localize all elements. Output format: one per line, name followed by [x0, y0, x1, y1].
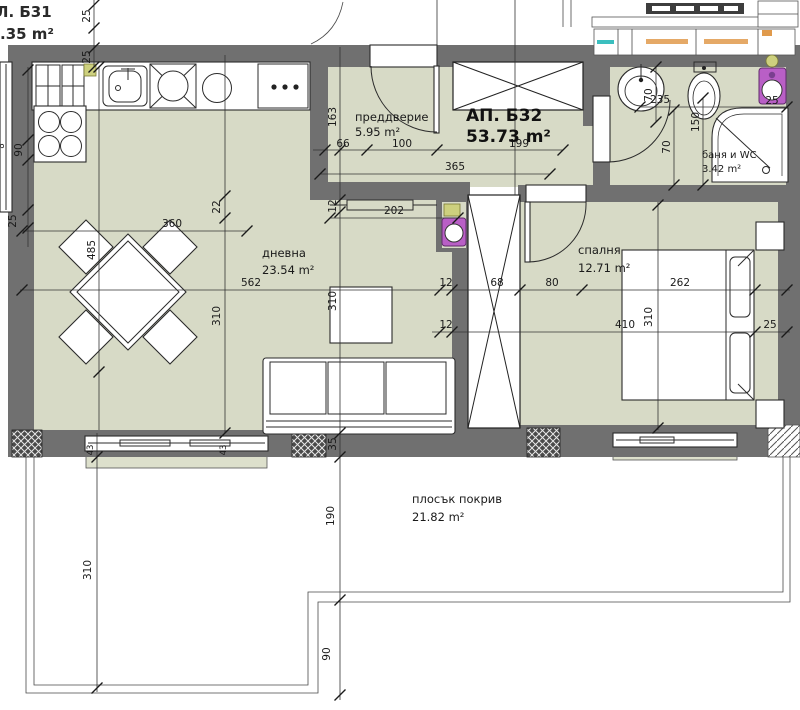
dim-12: 12	[439, 277, 452, 289]
bedroom-window	[613, 433, 737, 447]
dim-485: 485	[86, 240, 98, 260]
nightstand	[756, 400, 784, 428]
corridor-door-arc	[311, 2, 343, 44]
neighbor-window	[0, 62, 12, 212]
roof-area: 21.82 m²	[412, 510, 464, 524]
dim-150: 150	[690, 112, 702, 132]
bath-label: баня и WC	[702, 150, 757, 161]
dim-90: 90	[13, 143, 25, 156]
dim-25: 25	[81, 50, 93, 63]
dim-25: 25	[81, 9, 93, 22]
dim-90: 90	[321, 647, 333, 660]
bath-area: 3.42 m²	[702, 164, 741, 175]
dim-365: 365	[445, 161, 465, 173]
dim-310: 310	[643, 307, 655, 327]
dim-310: 310	[211, 306, 223, 326]
cooktop	[34, 106, 86, 162]
dim-310: 310	[82, 560, 94, 580]
living-window	[85, 436, 268, 451]
dim-68: 68	[490, 277, 503, 289]
entrance-opening	[370, 45, 437, 67]
dim-8: 8	[0, 143, 7, 148]
coffee-table	[330, 287, 392, 343]
floor-plan-svg: 66 100 199 365 202 562 12 68 80 262 12 4…	[0, 0, 800, 710]
dim-562: 562	[241, 277, 261, 289]
floor-plan-screenshot: 66 100 199 365 202 562 12 68 80 262 12 4…	[0, 0, 800, 710]
flat-roof-outline	[26, 457, 790, 693]
dim-25: 25	[765, 95, 778, 107]
dim-80: 80	[545, 277, 558, 289]
bedroom-area: 12.71 m²	[578, 261, 630, 275]
dim-12: 12	[327, 199, 339, 212]
orange-tag	[704, 39, 748, 44]
dining-set	[59, 220, 197, 364]
dim-70: 70	[661, 140, 673, 153]
apartment-label: АП. Б32	[466, 106, 542, 126]
dim-12: 12	[439, 319, 452, 331]
dim-70: 70	[643, 88, 655, 101]
hall-area: 5.95 m²	[355, 125, 400, 139]
bedroom-label: спалня	[578, 243, 621, 257]
dim-262: 262	[670, 277, 690, 289]
dim-163: 163	[327, 107, 339, 127]
dim-202: 202	[384, 205, 404, 217]
entry-closet	[453, 62, 583, 110]
bath-door-opening	[593, 96, 610, 162]
dim-410: 410	[615, 319, 635, 331]
dim-22: 22	[211, 200, 223, 213]
dim-360: 360	[162, 218, 182, 230]
roof-label: плосък покрив	[412, 492, 502, 506]
dim-43: 43	[219, 445, 229, 456]
nightstand	[756, 222, 784, 250]
dim-25: 25	[7, 214, 19, 227]
apartment-area: 53.73 m²	[466, 127, 551, 147]
bedroom-door-opening	[526, 185, 586, 202]
dim-25: 25	[763, 319, 776, 331]
neighbor-apartment-area: .35 m²	[0, 25, 54, 43]
dim-190: 190	[325, 506, 337, 526]
orange-tag	[646, 39, 688, 44]
neighbor-apartment-label: Л. Б31	[0, 3, 52, 21]
dim-66: 66	[336, 138, 350, 150]
hall-label: преддверие	[355, 110, 429, 124]
shaft	[468, 195, 520, 428]
living-label: дневна	[262, 246, 306, 260]
dim-43: 43	[86, 445, 96, 456]
sofa	[263, 358, 455, 434]
dim-100: 100	[392, 138, 412, 150]
dim-310: 310	[327, 291, 339, 311]
living-area: 23.54 m²	[262, 263, 314, 277]
dim-35: 35	[327, 437, 339, 450]
teal-tag	[597, 40, 614, 44]
